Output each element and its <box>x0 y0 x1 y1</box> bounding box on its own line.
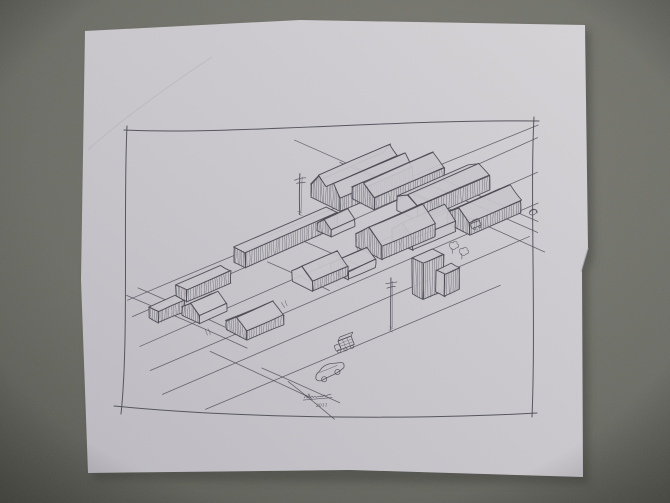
film-grain <box>0 0 670 503</box>
photo-of-sketch: 2011 <box>0 0 670 503</box>
scene-svg: 2011 <box>0 0 670 503</box>
